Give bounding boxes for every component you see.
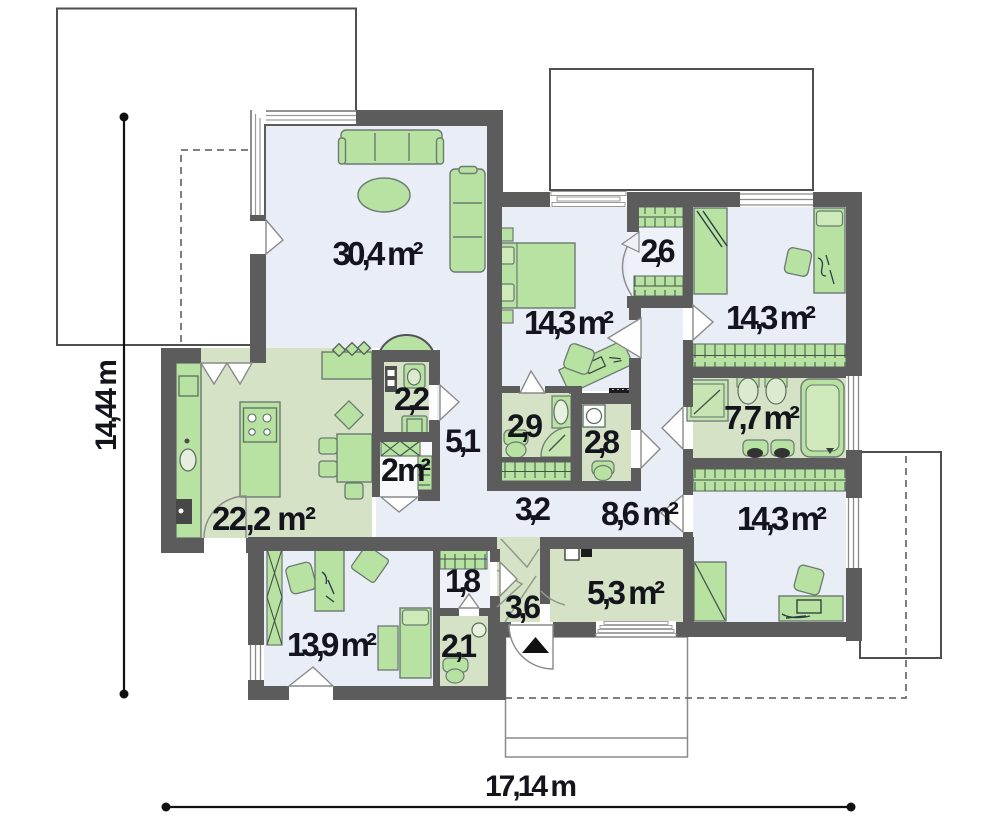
svg-text:22,2 m²: 22,2 m² (212, 500, 316, 537)
svg-text:14,3 m²: 14,3 m² (737, 500, 827, 537)
svg-text:2 m²: 2 m² (381, 452, 431, 488)
svg-text:2,8: 2,8 (584, 424, 620, 460)
svg-text:7,7 m²: 7,7 m² (724, 399, 800, 436)
svg-text:13,9 m²: 13,9 m² (287, 626, 377, 663)
svg-text:2,6: 2,6 (641, 233, 676, 269)
svg-text:14,3 m²: 14,3 m² (524, 304, 614, 341)
svg-text:2,9: 2,9 (507, 408, 543, 444)
svg-text:17,14 m: 17,14 m (485, 770, 577, 803)
svg-text:14,44 m: 14,44 m (90, 359, 123, 451)
svg-text:2,1: 2,1 (441, 628, 477, 664)
svg-text:3,6: 3,6 (505, 589, 541, 625)
svg-text:1,8: 1,8 (445, 563, 481, 599)
svg-text:5,3 m²: 5,3 m² (587, 574, 665, 611)
svg-text:5,1: 5,1 (445, 423, 481, 459)
svg-text:14,3 m²: 14,3 m² (726, 299, 816, 336)
svg-text:8,6 m²: 8,6 m² (601, 495, 679, 532)
svg-text:2,2: 2,2 (394, 381, 430, 417)
svg-text:3,2: 3,2 (515, 491, 551, 527)
svg-text:30,4 m²: 30,4 m² (333, 235, 424, 272)
